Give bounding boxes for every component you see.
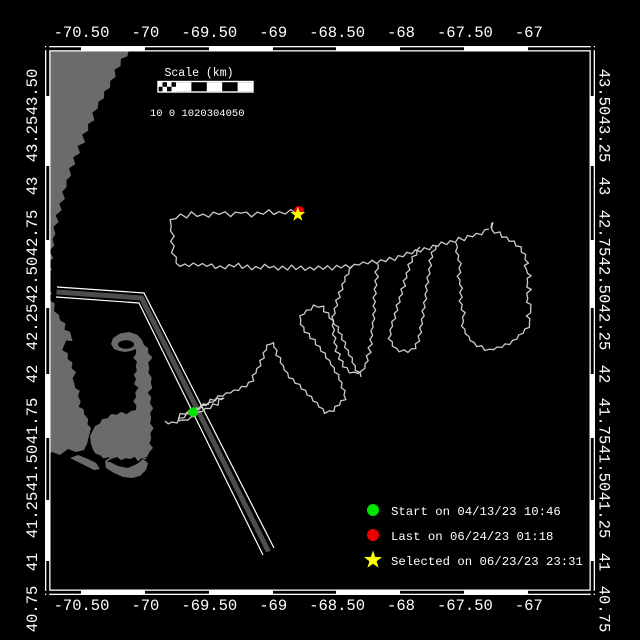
svg-text:41.75: 41.75 xyxy=(24,398,42,445)
svg-text:43.50: 43.50 xyxy=(24,69,42,116)
svg-text:42: 42 xyxy=(24,365,42,384)
svg-text:42.50: 42.50 xyxy=(595,257,613,304)
svg-text:-70: -70 xyxy=(131,597,159,615)
svg-text:Last on 06/24/23 01:18: Last on 06/24/23 01:18 xyxy=(391,530,553,544)
svg-text:-68.50: -68.50 xyxy=(309,24,365,42)
svg-text:40.75: 40.75 xyxy=(24,586,42,633)
svg-text:-67: -67 xyxy=(515,24,543,42)
svg-text:-69.50: -69.50 xyxy=(181,24,237,42)
svg-text:42.75: 42.75 xyxy=(595,210,613,257)
svg-text:41.25: 41.25 xyxy=(24,492,42,539)
svg-text:-69: -69 xyxy=(259,597,287,615)
svg-text:-70.50: -70.50 xyxy=(54,597,110,615)
svg-text:43: 43 xyxy=(24,177,42,196)
svg-text:42.25: 42.25 xyxy=(595,304,613,351)
svg-text:42: 42 xyxy=(595,365,613,384)
svg-text:42.25: 42.25 xyxy=(24,304,42,351)
svg-text:41: 41 xyxy=(595,553,613,572)
svg-text:Selected on 06/23/23 23:31: Selected on 06/23/23 23:31 xyxy=(391,555,583,569)
svg-text:41: 41 xyxy=(24,553,42,572)
svg-text:-68: -68 xyxy=(387,24,415,42)
svg-text:-69: -69 xyxy=(259,24,287,42)
svg-text:-68: -68 xyxy=(387,597,415,615)
svg-text:-68.50: -68.50 xyxy=(309,597,365,615)
svg-text:-67.50: -67.50 xyxy=(437,24,493,42)
svg-text:Start on 04/13/23 10:46: Start on 04/13/23 10:46 xyxy=(391,505,561,519)
svg-text:Scale (km): Scale (km) xyxy=(164,67,233,80)
svg-text:41.25: 41.25 xyxy=(595,492,613,539)
svg-text:43.25: 43.25 xyxy=(24,116,42,163)
svg-text:-67.50: -67.50 xyxy=(437,597,493,615)
svg-text:43: 43 xyxy=(595,177,613,196)
svg-text:41.75: 41.75 xyxy=(595,398,613,445)
svg-text:43.25: 43.25 xyxy=(595,116,613,163)
svg-text:43.50: 43.50 xyxy=(595,69,613,116)
svg-text:41.50: 41.50 xyxy=(595,445,613,492)
svg-text:10 0 1020304050: 10 0 1020304050 xyxy=(150,108,245,120)
svg-text:-70: -70 xyxy=(131,24,159,42)
svg-text:-70.50: -70.50 xyxy=(54,24,110,42)
svg-text:41.50: 41.50 xyxy=(24,445,42,492)
svg-text:42.50: 42.50 xyxy=(24,257,42,304)
svg-text:-69.50: -69.50 xyxy=(181,597,237,615)
svg-text:40.75: 40.75 xyxy=(595,586,613,633)
svg-text:-67: -67 xyxy=(515,597,543,615)
svg-text:42.75: 42.75 xyxy=(24,210,42,257)
